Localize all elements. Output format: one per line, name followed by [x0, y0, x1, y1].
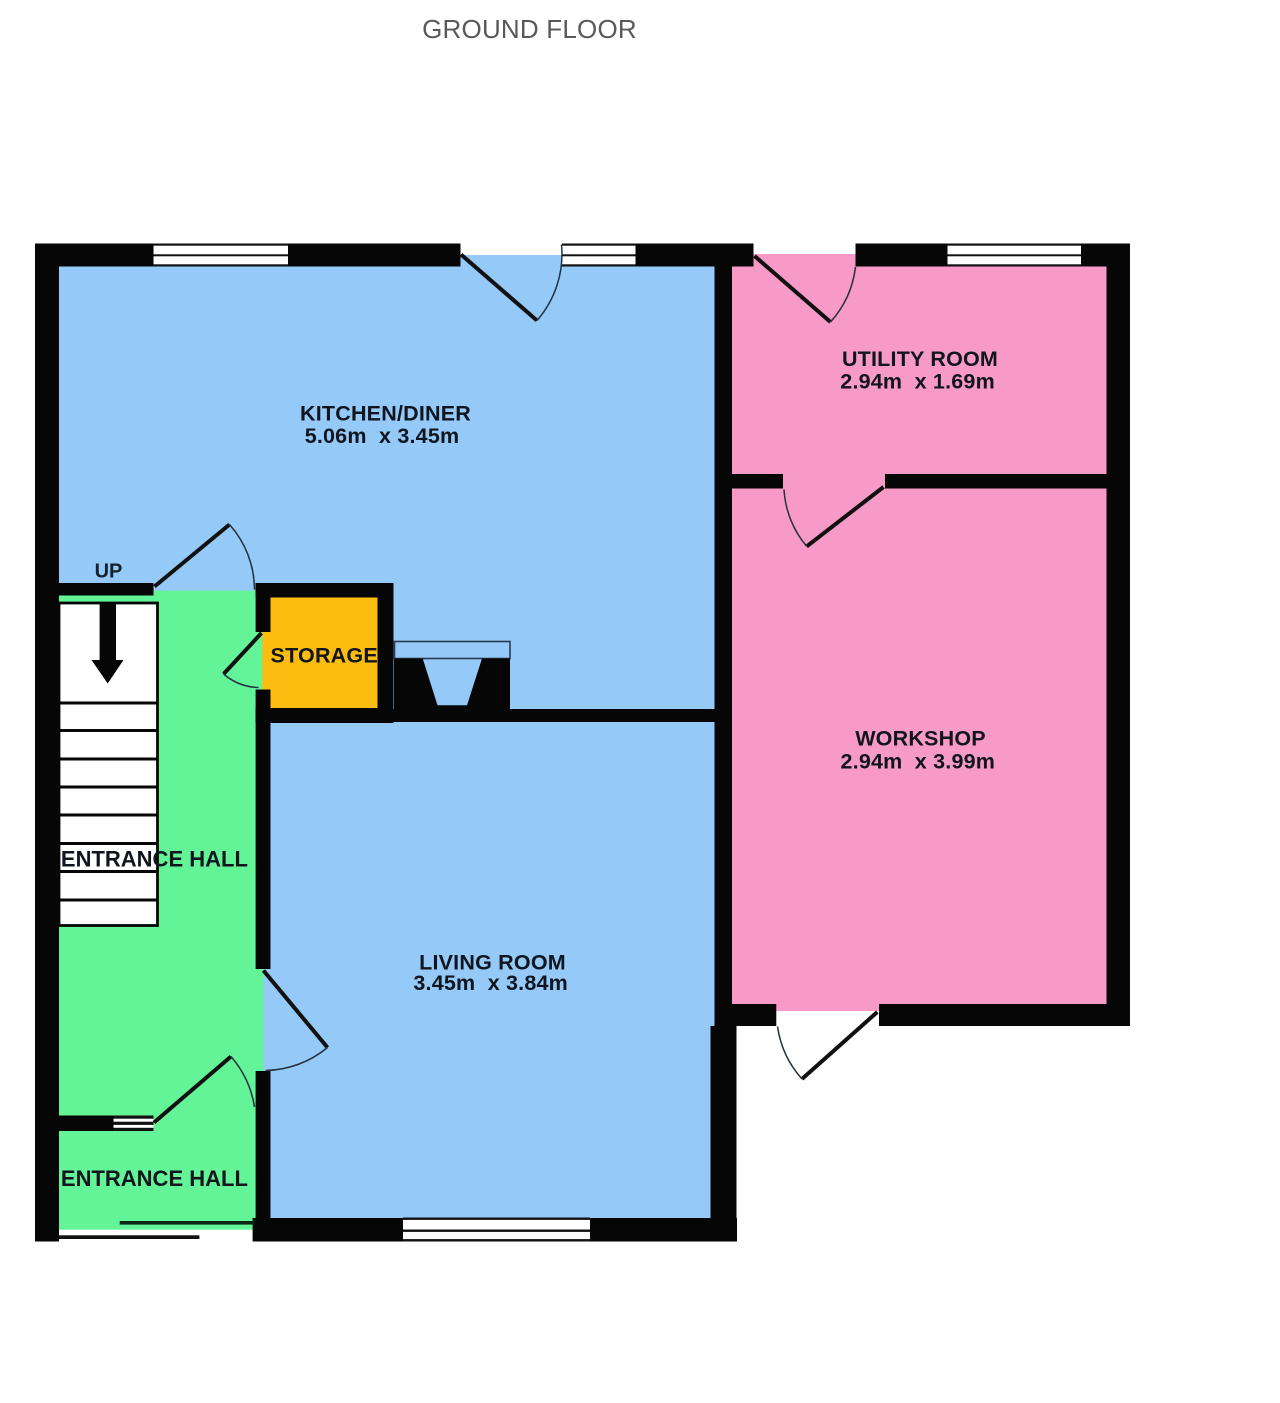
- svg-text:UP: UP: [95, 561, 123, 583]
- svg-text:UTILITY ROOM: UTILITY ROOM: [842, 347, 998, 371]
- svg-text:GROUND FLOOR: GROUND FLOOR: [422, 14, 637, 44]
- svg-text:WORKSHOP: WORKSHOP: [855, 727, 986, 751]
- svg-text:3.45m x 3.84m: 3.45m x 3.84m: [413, 971, 568, 995]
- svg-text:ENTRANCE HALL: ENTRANCE HALL: [61, 847, 248, 872]
- svg-text:STORAGE: STORAGE: [271, 643, 378, 667]
- svg-text:ENTRANCE HALL: ENTRANCE HALL: [61, 1166, 248, 1191]
- svg-text:KITCHEN/DINER: KITCHEN/DINER: [300, 402, 471, 426]
- svg-text:2.94m x 3.99m: 2.94m x 3.99m: [840, 750, 995, 774]
- svg-text:2.94m x 1.69m: 2.94m x 1.69m: [840, 370, 995, 394]
- svg-text:5.06m x 3.45m: 5.06m x 3.45m: [305, 424, 460, 448]
